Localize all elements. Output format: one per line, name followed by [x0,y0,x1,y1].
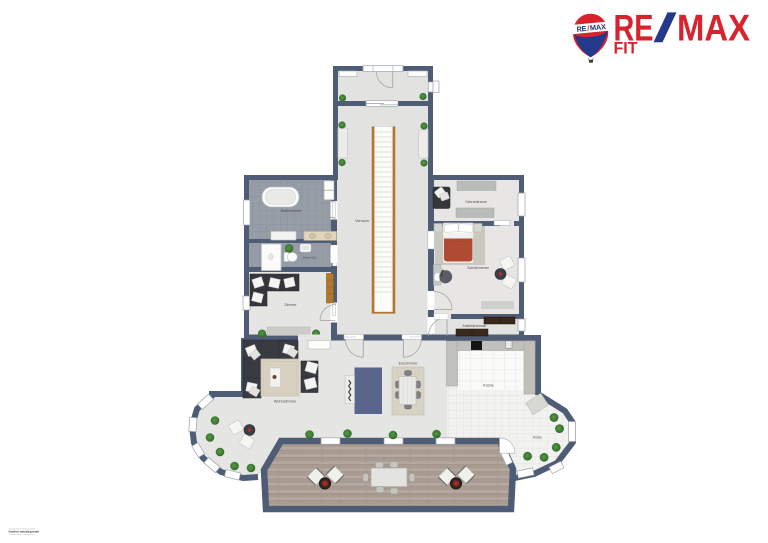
svg-text:Vorraum: Vorraum [355,219,369,223]
svg-text:Küche: Küche [483,384,494,388]
svg-text:Schlafzimmer: Schlafzimmer [467,266,490,270]
svg-text:Ankleidezimmer: Ankleidezimmer [462,324,487,328]
svg-text:Wohnzimmer: Wohnzimmer [274,400,297,404]
svg-text:Esszimmer: Esszimmer [399,362,419,366]
svg-text:Küche: Küche [533,436,542,440]
svg-text:MAX: MAX [677,8,750,49]
svg-text:Alle Angaben ohne Gewähr: Alle Angaben ohne Gewähr [10,533,34,536]
svg-text:Gäste WC: Gäste WC [303,256,318,260]
svg-text:Grundrisse: zweistufig gerende: Grundrisse: zweistufig gerendert [9,529,40,533]
svg-text:Schrankraum: Schrankraum [465,200,486,204]
svg-text:FIT: FIT [614,40,638,58]
svg-text:MAX: MAX [589,22,606,33]
svg-text:RE: RE [576,24,587,34]
svg-text:Badezimmer: Badezimmer [281,209,302,213]
svg-text:Zimmer: Zimmer [284,303,297,307]
